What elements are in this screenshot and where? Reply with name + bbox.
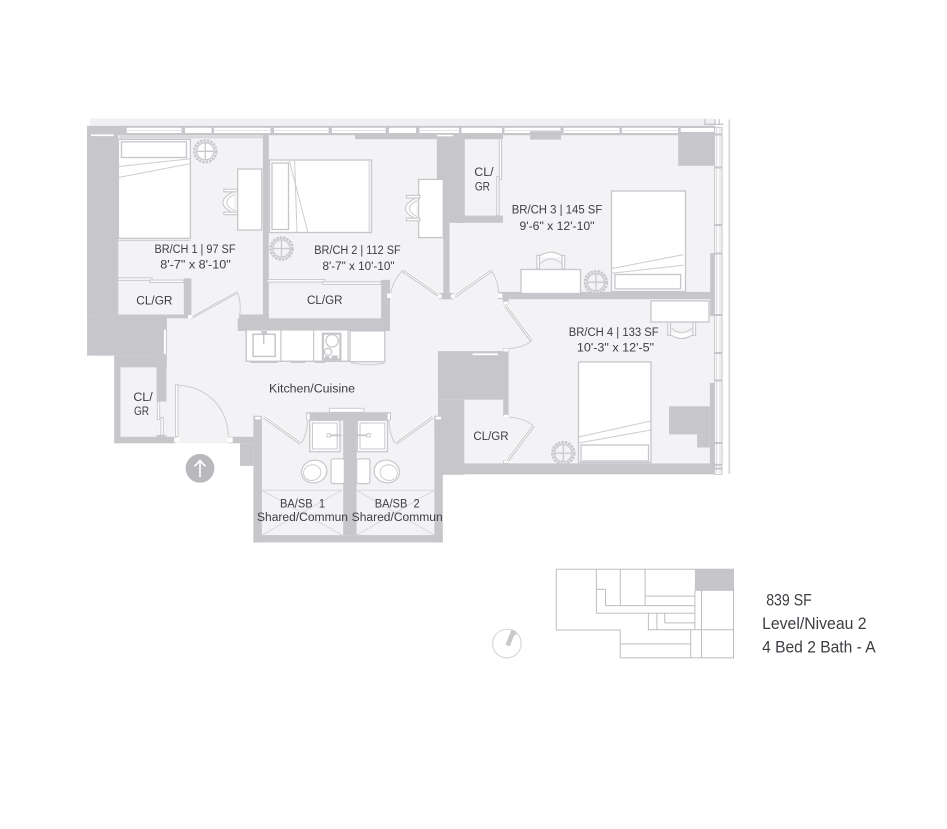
svg-text:GR: GR: [134, 406, 149, 418]
svg-text:BA/SB 2: BA/SB 2: [375, 498, 420, 510]
svg-text:8'-7" x 8'-10": 8'-7" x 8'-10": [160, 257, 231, 271]
svg-text:Level/Niveau 2: Level/Niveau 2: [762, 615, 867, 633]
svg-text:4 Bed 2 Bath - A: 4 Bed 2 Bath - A: [762, 639, 876, 657]
svg-text:10'-3" x 12'-5": 10'-3" x 12'-5": [577, 341, 654, 355]
svg-text:Shared/Commun: Shared/Commun: [257, 512, 348, 524]
svg-text:Shared/Commun: Shared/Commun: [352, 512, 443, 524]
svg-text:Kitchen/Cuisine: Kitchen/Cuisine: [269, 382, 355, 396]
svg-text:CL/GR: CL/GR: [473, 431, 508, 443]
svg-text:BR/CH 3 | 145 SF: BR/CH 3 | 145 SF: [512, 203, 603, 217]
svg-text:839 SF: 839 SF: [766, 592, 812, 610]
svg-text:BR/CH 1 | 97 SF: BR/CH 1 | 97 SF: [155, 242, 236, 256]
svg-text:CL/: CL/: [474, 167, 494, 179]
svg-text:9'-6" x 12'-10": 9'-6" x 12'-10": [520, 219, 595, 233]
svg-text:8'-7" x 10'-10": 8'-7" x 10'-10": [323, 259, 395, 273]
svg-text:BR/CH 4 | 133 SF: BR/CH 4 | 133 SF: [569, 325, 659, 339]
svg-text:BR/CH 2 | 112 SF: BR/CH 2 | 112 SF: [314, 243, 401, 257]
svg-text:GR: GR: [475, 181, 490, 193]
svg-text:CL/GR: CL/GR: [136, 295, 172, 307]
svg-text:BA/SB 1: BA/SB 1: [280, 498, 325, 510]
svg-text:CL/GR: CL/GR: [307, 295, 343, 307]
svg-text:CL/: CL/: [133, 392, 153, 404]
